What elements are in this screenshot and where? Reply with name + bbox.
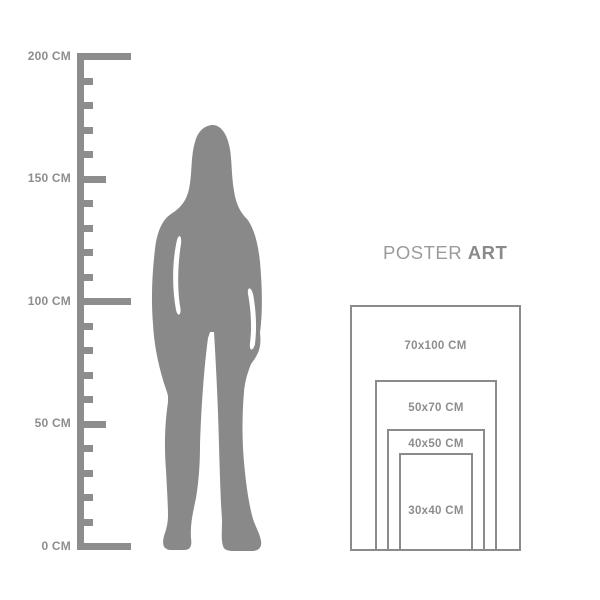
poster-art-title: POSTER ART	[383, 242, 507, 264]
poster-size-guide: 200 CM 150 CM 100 CM 50 CM 0 CM POSTER A…	[0, 0, 600, 600]
title-word-art: ART	[468, 242, 508, 263]
title-word-poster: POSTER	[383, 242, 462, 263]
size-label-30x40: 30x40 CM	[399, 505, 473, 518]
size-label-70x100: 70x100 CM	[350, 340, 521, 353]
size-label-50x70: 50x70 CM	[375, 402, 497, 415]
size-label-40x50: 40x50 CM	[387, 438, 485, 451]
size-rect-30x40	[399, 453, 473, 551]
